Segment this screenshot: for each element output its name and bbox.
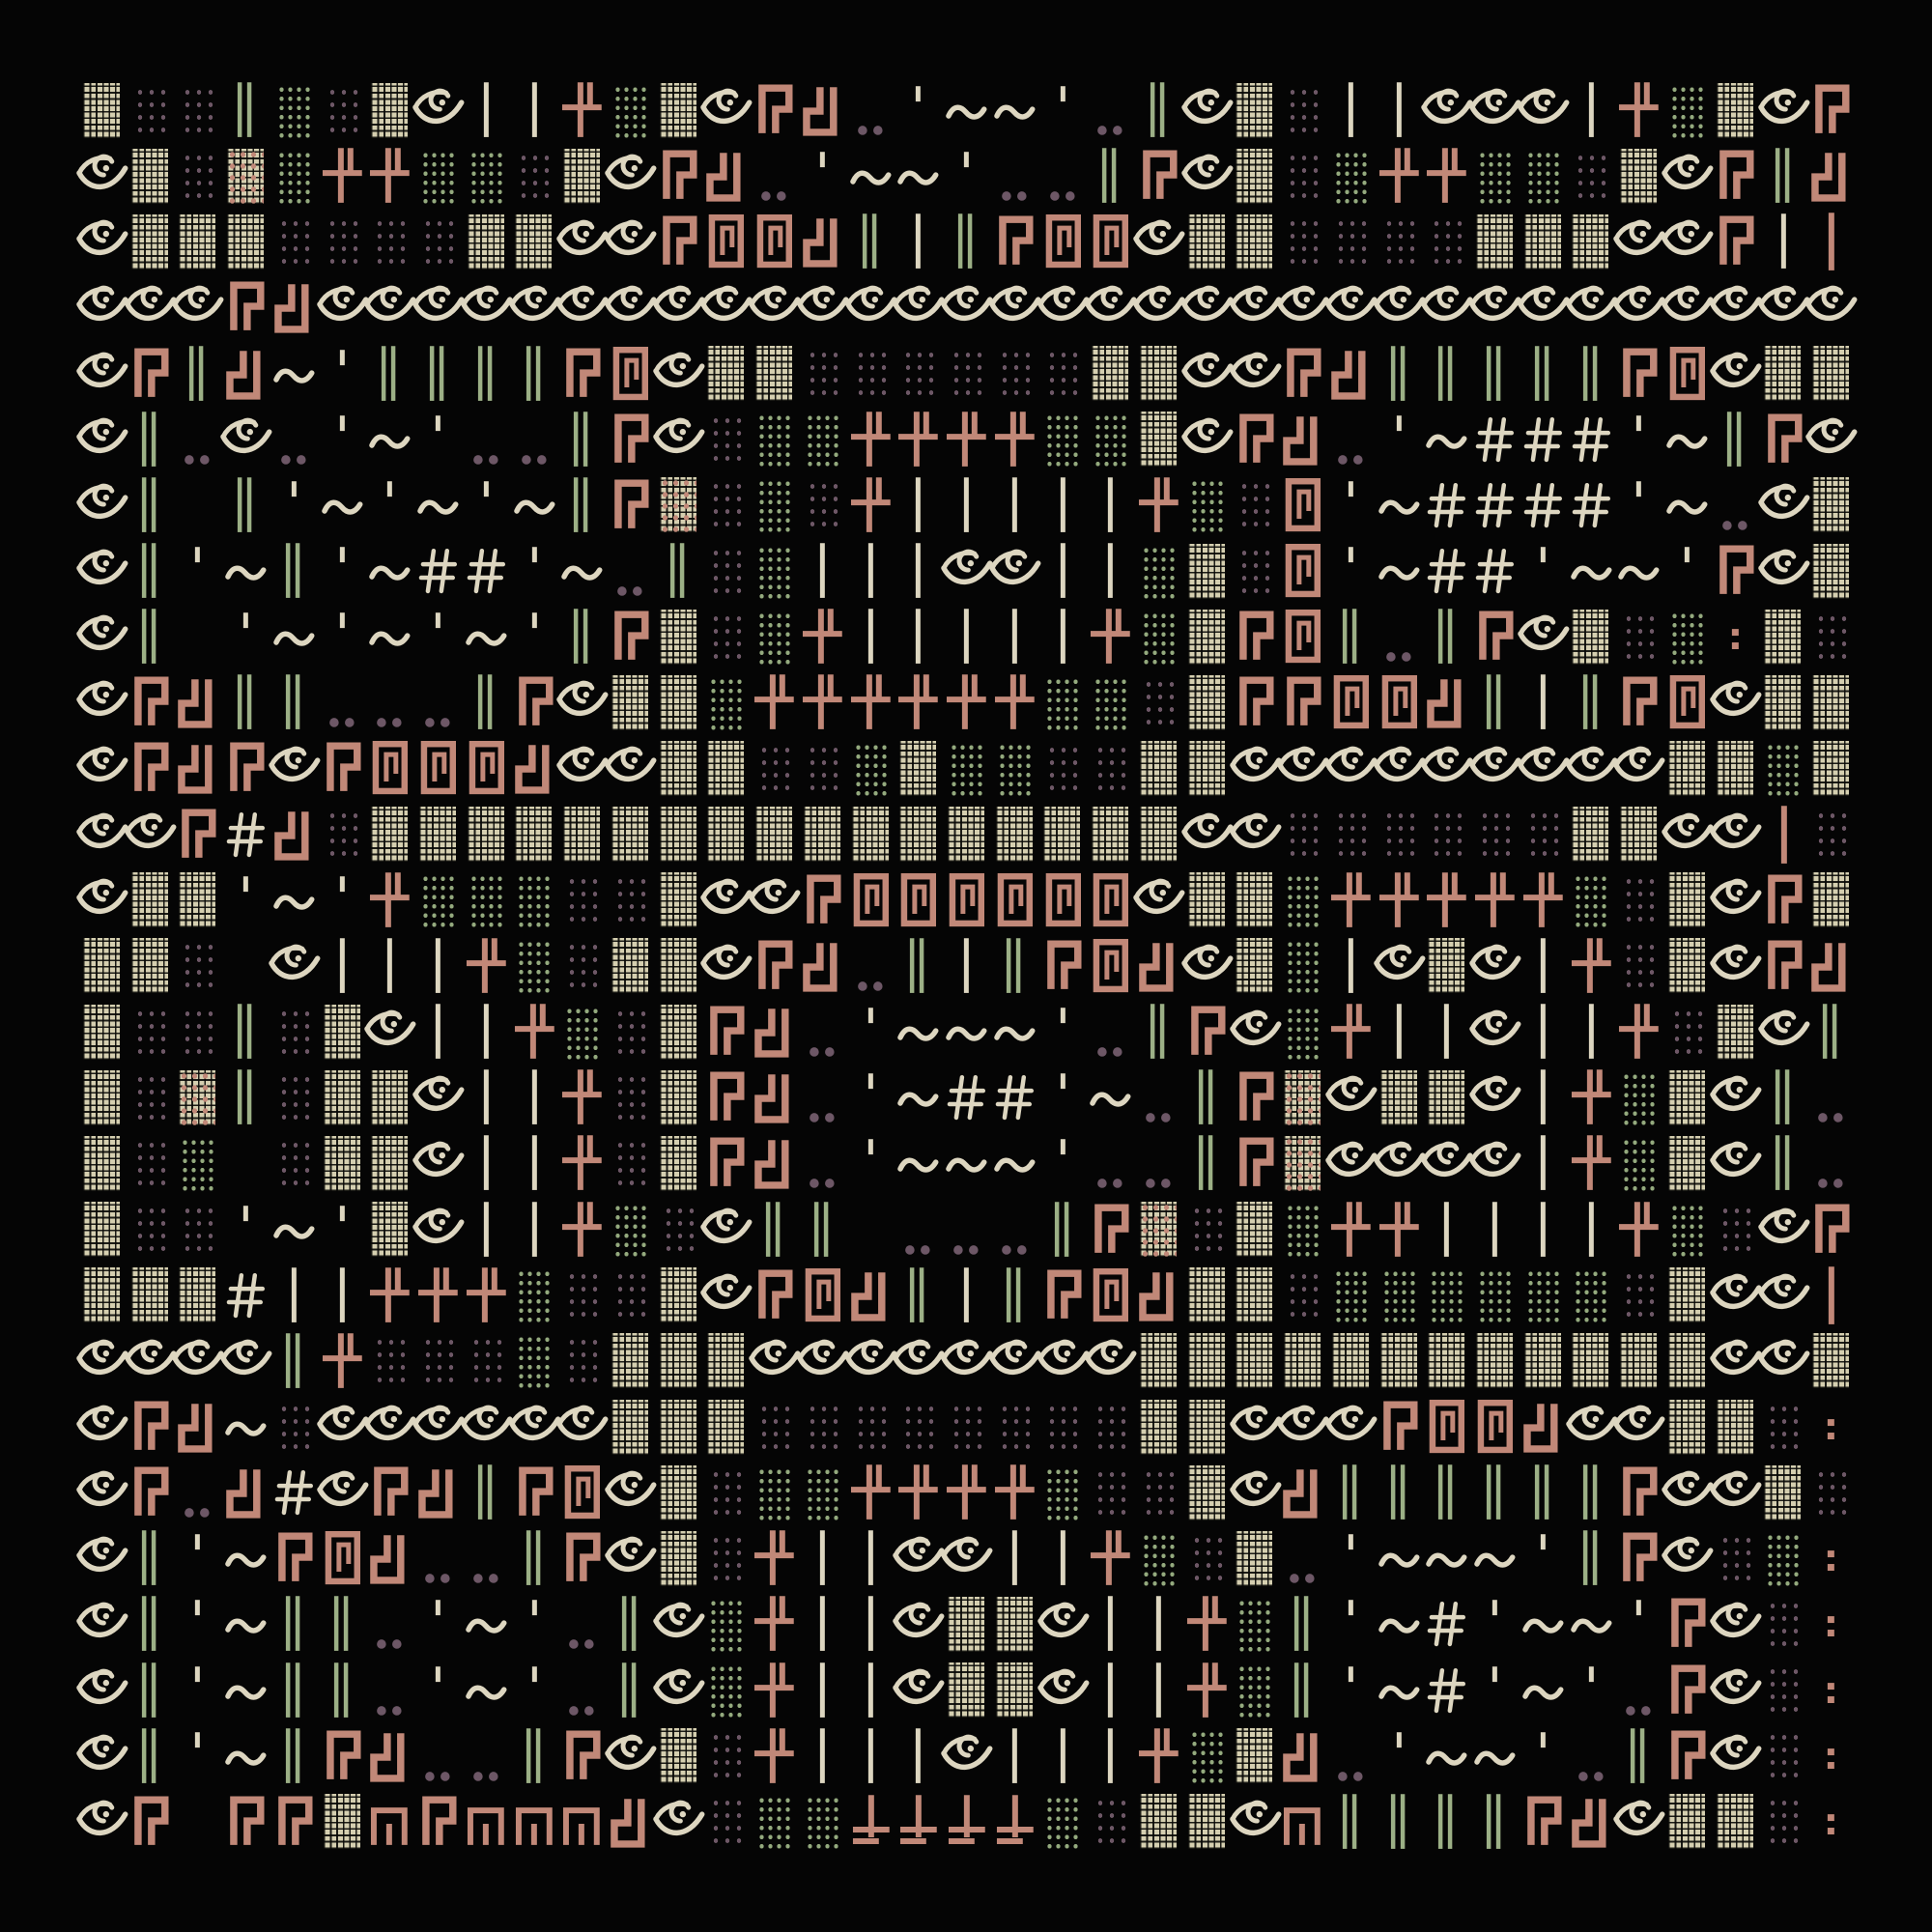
eye-icon: [413, 1197, 462, 1263]
eye-icon: [1711, 1591, 1759, 1657]
dot-block-green: [750, 1789, 798, 1855]
tick-cream: [173, 538, 221, 604]
dot-block-mauve: [701, 1525, 750, 1591]
tilde-glyph: [462, 1591, 510, 1657]
dot-pair-mauve: [413, 1723, 462, 1789]
dot-block-cream: [654, 1065, 702, 1130]
gamma-icon: [1614, 669, 1662, 735]
bar-cream: [894, 604, 942, 669]
gamma-icon: [1759, 867, 1807, 933]
dot-block-mauve: [1134, 669, 1182, 735]
eye-icon: [701, 1263, 750, 1328]
gamma-icon: [126, 1394, 174, 1460]
cross-icon: [990, 1460, 1038, 1525]
bar-cream: [510, 1130, 558, 1196]
double-bar-green: [1134, 77, 1182, 143]
dot-block-green: [701, 1591, 750, 1657]
dot-block-mauve: [173, 933, 221, 999]
dot-block-green: [1086, 669, 1134, 735]
tilde-glyph: [1567, 538, 1615, 604]
double-bar-green: [1134, 999, 1182, 1065]
dot-block-cream: [701, 1328, 750, 1394]
eye-icon: [1422, 77, 1470, 143]
eye-icon: [557, 735, 606, 801]
bar-cream: [462, 1130, 510, 1196]
dot-pair-mauve: [798, 1065, 846, 1130]
double-bar-green: [990, 933, 1038, 999]
tilde-glyph: [1614, 538, 1662, 604]
dot-block-cream: [1182, 1263, 1231, 1328]
hash-glyph: [1567, 472, 1615, 538]
eye-icon: [1231, 341, 1279, 407]
tick-cream: [413, 604, 462, 669]
double-bar-green: [126, 407, 174, 472]
eye-icon: [1614, 735, 1662, 801]
bar-cream: [846, 1591, 895, 1657]
dot-block-mauve: [846, 1394, 895, 1460]
eye-icon: [1662, 274, 1711, 340]
dot-block-cream: [1231, 1723, 1279, 1789]
dot-block-cream: [126, 143, 174, 209]
dot-block-mauve: [798, 735, 846, 801]
boxed-gamma-icon: [1662, 669, 1711, 735]
bar-cream: [894, 472, 942, 538]
dot-block-green: [462, 867, 510, 933]
dot-block-cream: [654, 77, 702, 143]
dot-pair-mauve: [1134, 1130, 1182, 1196]
dot-block-green: [1759, 735, 1807, 801]
tick-cream: [1038, 1130, 1087, 1196]
dot-block-green: [1614, 1130, 1662, 1196]
dot-pair-mauve: [1375, 604, 1423, 669]
dot-block-cream: [1134, 802, 1182, 867]
eye-icon: [1134, 209, 1182, 274]
bar-cream: [846, 604, 895, 669]
dot-pair-salmon: [1806, 1658, 1855, 1723]
dot-block-mauve: [1038, 341, 1087, 407]
cross-icon: [1567, 1130, 1615, 1196]
gamma-flipped-icon: [846, 1263, 895, 1328]
dot-block-cream: [173, 209, 221, 274]
gamma-flipped-icon: [701, 143, 750, 209]
dot-pair-mauve: [1134, 1065, 1182, 1130]
eye-icon: [1662, 802, 1711, 867]
bar-salmon: [1806, 1263, 1855, 1328]
gamma-icon: [1614, 1525, 1662, 1591]
cross-icon: [894, 1460, 942, 1525]
eye-icon: [221, 1328, 270, 1394]
cross-icon: [846, 1460, 895, 1525]
dot-block-cream: [1662, 1328, 1711, 1394]
dot-block-cream: [750, 341, 798, 407]
double-bar-green: [798, 1197, 846, 1263]
double-bar-green: [1759, 143, 1807, 209]
dot-block-cream: [1662, 933, 1711, 999]
hash-glyph: [1567, 407, 1615, 472]
eye-icon: [606, 143, 654, 209]
double-bar-green: [221, 472, 270, 538]
bar-cream: [798, 1591, 846, 1657]
dot-block-mauve: [1086, 735, 1134, 801]
double-bar-green: [894, 933, 942, 999]
eye-icon: [1662, 209, 1711, 274]
tilde-glyph: [1422, 1723, 1470, 1789]
double-bar-green: [1038, 1197, 1087, 1263]
double-bar-green: [1422, 604, 1470, 669]
tick-cream: [846, 1065, 895, 1130]
dot-block-cream: [318, 1130, 366, 1196]
gamma-icon: [1614, 1460, 1662, 1525]
bar-cream: [990, 472, 1038, 538]
double-bar-green: [1470, 1460, 1519, 1525]
double-bar-green: [126, 604, 174, 669]
dot-block-cream: [1182, 209, 1231, 274]
eye-icon: [462, 274, 510, 340]
gamma-icon: [1038, 1263, 1087, 1328]
eye-icon: [77, 1328, 126, 1394]
dot-block-cream: [1086, 802, 1134, 867]
eye-icon: [1326, 1130, 1375, 1196]
hash-glyph: [221, 1263, 270, 1328]
gamma-flipped-icon: [270, 274, 318, 340]
tick-cream: [413, 1658, 462, 1723]
tilde-glyph: [1519, 1658, 1567, 1723]
dot-block-cream: [126, 1263, 174, 1328]
eye-icon: [77, 1460, 126, 1525]
dot-block-cream: [654, 867, 702, 933]
dot-block-cream: [557, 143, 606, 209]
dot-block-mauve: [270, 999, 318, 1065]
eye-icon: [1038, 1658, 1087, 1723]
gamma-flipped-icon: [1278, 1723, 1326, 1789]
tilde-glyph: [221, 1394, 270, 1460]
dot-block-cream: [413, 802, 462, 867]
dot-block-cream: [77, 1263, 126, 1328]
dot-block-cream: [1231, 209, 1279, 274]
bar-cream: [942, 604, 990, 669]
dot-block-cream: [654, 1723, 702, 1789]
cross-icon: [1326, 999, 1375, 1065]
eye-icon: [557, 669, 606, 735]
double-bar-green: [462, 341, 510, 407]
dot-block-cream: [894, 802, 942, 867]
dot-pair-mauve: [557, 1591, 606, 1657]
dot-block-mauve: [1278, 77, 1326, 143]
tick-cream: [173, 1658, 221, 1723]
gamma-icon: [1806, 77, 1855, 143]
gamma-flipped-icon: [1326, 341, 1375, 407]
eye-icon: [1711, 274, 1759, 340]
boxed-gamma-icon: [1038, 209, 1087, 274]
eye-icon: [1711, 933, 1759, 999]
dot-block-cream: [1182, 1394, 1231, 1460]
gamma-flipped-icon: [173, 1394, 221, 1460]
eye-icon: [701, 77, 750, 143]
bar-salmon: [1759, 802, 1807, 867]
eye-icon: [942, 538, 990, 604]
generative-ascii-art-canvas: [0, 0, 1932, 1932]
boxed-gamma-icon: [1086, 1263, 1134, 1328]
eye-icon: [510, 274, 558, 340]
dot-block-cream: [1086, 341, 1134, 407]
dot-block-green: [606, 1197, 654, 1263]
cross-icon: [1182, 1658, 1231, 1723]
double-bar-green: [270, 669, 318, 735]
cross-icon: [750, 669, 798, 735]
dot-block-cream: [1134, 341, 1182, 407]
dot-block-green: [1567, 867, 1615, 933]
eye-icon: [1759, 274, 1807, 340]
tick-cream: [1326, 472, 1375, 538]
cross-icon: [1086, 604, 1134, 669]
dot-block-cream: [654, 1394, 702, 1460]
gamma-icon: [654, 143, 702, 209]
double-bar-green: [1567, 341, 1615, 407]
eye-icon: [654, 1591, 702, 1657]
eye-icon: [77, 472, 126, 538]
tilde-glyph: [990, 1130, 1038, 1196]
dot-pair-mauve: [270, 407, 318, 472]
hash-glyph: [1422, 1591, 1470, 1657]
double-bar-green: [221, 669, 270, 735]
dot-block-green: [1134, 1525, 1182, 1591]
dot-pair-mauve: [1567, 1723, 1615, 1789]
dot-block-cream: [510, 209, 558, 274]
gamma-icon: [1614, 341, 1662, 407]
eye-icon: [1231, 274, 1279, 340]
tilde-glyph: [270, 1197, 318, 1263]
eye-icon: [750, 867, 798, 933]
cross-icon: [1182, 1591, 1231, 1657]
dot-pair-mauve: [510, 407, 558, 472]
dot-block-cream: [1806, 669, 1855, 735]
cross-icon: [365, 867, 413, 933]
tick-cream: [510, 1591, 558, 1657]
tilde-glyph: [1375, 538, 1423, 604]
dot-block-mauve: [1759, 1394, 1807, 1460]
bar-cream: [1567, 77, 1615, 143]
dot-pair-mauve: [365, 669, 413, 735]
dot-block-cream: [1806, 538, 1855, 604]
dot-pair-mauve: [798, 999, 846, 1065]
tilde-glyph: [1567, 1591, 1615, 1657]
boxed-gamma-icon: [1278, 538, 1326, 604]
tilde-glyph: [894, 1130, 942, 1196]
eye-icon: [77, 1723, 126, 1789]
eye-icon: [1519, 604, 1567, 669]
double-bar-green: [557, 407, 606, 472]
bar-cream: [1086, 1723, 1134, 1789]
eye-icon: [510, 1394, 558, 1460]
dot-block-green: [1134, 604, 1182, 669]
tilde-glyph: [990, 77, 1038, 143]
tick-cream: [221, 867, 270, 933]
dot-block-cream: [606, 669, 654, 735]
dot-block-cream: [1662, 1130, 1711, 1196]
cross-icon: [1134, 472, 1182, 538]
tick-cream: [798, 143, 846, 209]
dot-block-mauve: [1519, 802, 1567, 867]
hash-glyph: [1470, 472, 1519, 538]
dot-block-mauve: [557, 1328, 606, 1394]
gamma-icon: [798, 867, 846, 933]
bar-cream: [846, 538, 895, 604]
boxed-gamma-icon: [894, 867, 942, 933]
double-bar-green: [557, 604, 606, 669]
cross-icon: [846, 472, 895, 538]
dot-block-cream: [77, 1065, 126, 1130]
eye-icon: [1231, 1394, 1279, 1460]
tick-cream: [270, 472, 318, 538]
double-bar-green: [318, 1658, 366, 1723]
eye-icon: [318, 274, 366, 340]
dot-block-cream: [1182, 1460, 1231, 1525]
double-bar-green: [462, 669, 510, 735]
gamma-icon: [557, 1525, 606, 1591]
eye-icon: [77, 1394, 126, 1460]
bar-cream: [462, 77, 510, 143]
dot-block-cream: [701, 735, 750, 801]
bar-cream: [1519, 1197, 1567, 1263]
eye-icon: [1711, 341, 1759, 407]
tilde-glyph: [270, 341, 318, 407]
dot-block-mauve: [990, 341, 1038, 407]
double-bar-green: [1422, 1789, 1470, 1855]
gamma-icon: [1182, 999, 1231, 1065]
eye-icon: [1759, 1263, 1807, 1328]
dot-block-cream: [606, 1328, 654, 1394]
dot-pair-mauve: [413, 1525, 462, 1591]
dot-block-cream: [654, 1328, 702, 1394]
dot-block-cream: [654, 999, 702, 1065]
gamma-flipped-icon: [1567, 1789, 1615, 1855]
eye-icon: [1375, 735, 1423, 801]
dot-block-green: [1567, 1263, 1615, 1328]
eye-icon: [270, 933, 318, 999]
dot-pair-salmon: [1711, 604, 1759, 669]
eye-icon: [1614, 274, 1662, 340]
gamma-icon: [1231, 1130, 1279, 1196]
dot-block-mixed: [173, 1065, 221, 1130]
dot-block-mauve: [1086, 1460, 1134, 1525]
dot-block-cream: [221, 209, 270, 274]
bar-cream: [942, 933, 990, 999]
tick-cream: [365, 472, 413, 538]
eye-icon: [1182, 802, 1231, 867]
dot-block-mauve: [557, 1263, 606, 1328]
dot-block-cream: [1614, 1328, 1662, 1394]
tick-cream: [462, 472, 510, 538]
bar-salmon: [1806, 209, 1855, 274]
eye-icon: [1231, 1789, 1279, 1855]
hash-glyph: [1519, 407, 1567, 472]
dot-block-mauve: [1182, 1197, 1231, 1263]
eye-icon: [606, 1525, 654, 1591]
dot-block-mauve: [1038, 1394, 1087, 1460]
dot-block-cream: [606, 802, 654, 867]
eye-icon: [1662, 1460, 1711, 1525]
dot-block-green: [990, 735, 1038, 801]
gamma-icon: [1806, 1197, 1855, 1263]
tick-cream: [318, 341, 366, 407]
dot-pair-salmon: [1806, 1525, 1855, 1591]
double-bar-green: [1375, 341, 1423, 407]
dot-block-cream: [1567, 604, 1615, 669]
bar-cream: [1134, 1591, 1182, 1657]
gamma-flipped-icon: [798, 77, 846, 143]
tilde-glyph: [462, 604, 510, 669]
eye-icon: [606, 735, 654, 801]
dot-block-cream: [1519, 1328, 1567, 1394]
dot-block-cream: [126, 867, 174, 933]
double-bar-green: [510, 1525, 558, 1591]
dot-block-cream: [1422, 933, 1470, 999]
dot-pair-mauve: [1326, 407, 1375, 472]
eye-icon: [1614, 1789, 1662, 1855]
cross-icon: [1519, 867, 1567, 933]
dot-block-mauve: [1759, 1789, 1807, 1855]
dot-block-green: [1326, 143, 1375, 209]
eye-icon: [894, 1658, 942, 1723]
tick-cream: [1470, 1658, 1519, 1723]
tilde-glyph: [462, 1658, 510, 1723]
eye-icon: [894, 1591, 942, 1657]
gamma-flipped-icon: [1422, 669, 1470, 735]
dot-block-green: [1662, 604, 1711, 669]
dot-block-mixed: [1134, 1197, 1182, 1263]
boxed-gamma-icon: [1086, 209, 1134, 274]
double-bar-green: [606, 1591, 654, 1657]
bar-cream: [1422, 999, 1470, 1065]
tick-cream: [1519, 1723, 1567, 1789]
dot-block-mauve: [318, 209, 366, 274]
dot-pair-mauve: [1326, 1723, 1375, 1789]
bar-cream: [1375, 999, 1423, 1065]
double-bar-green: [413, 341, 462, 407]
dot-block-cream: [1134, 1394, 1182, 1460]
eye-icon: [990, 274, 1038, 340]
bar-cream: [413, 933, 462, 999]
eye-icon: [365, 999, 413, 1065]
dot-block-mauve: [173, 77, 221, 143]
dot-pair-mauve: [1278, 1525, 1326, 1591]
bar-cream: [1038, 1525, 1087, 1591]
dot-block-mauve: [126, 999, 174, 1065]
dot-block-cream: [1134, 1789, 1182, 1855]
boxed-gamma-icon: [990, 867, 1038, 933]
eye-icon: [413, 274, 462, 340]
tick-cream: [318, 407, 366, 472]
bar-cream: [1567, 1197, 1615, 1263]
hash-glyph: [1422, 538, 1470, 604]
bar-cream: [510, 1065, 558, 1130]
dot-block-green: [1278, 1197, 1326, 1263]
bar-cream: [942, 472, 990, 538]
eye-icon: [1759, 1197, 1807, 1263]
dot-block-green: [1519, 1263, 1567, 1328]
boxed-gamma-icon: [798, 1263, 846, 1328]
dot-block-green: [413, 143, 462, 209]
eye-icon: [1038, 1328, 1087, 1394]
boxed-gamma-icon: [606, 341, 654, 407]
dot-block-cream: [990, 1591, 1038, 1657]
dot-block-cream: [1806, 735, 1855, 801]
gamma-icon: [1470, 604, 1519, 669]
dot-pair-mauve: [462, 1525, 510, 1591]
tick-cream: [942, 143, 990, 209]
double-bar-green: [654, 538, 702, 604]
dot-pair-mauve: [318, 669, 366, 735]
